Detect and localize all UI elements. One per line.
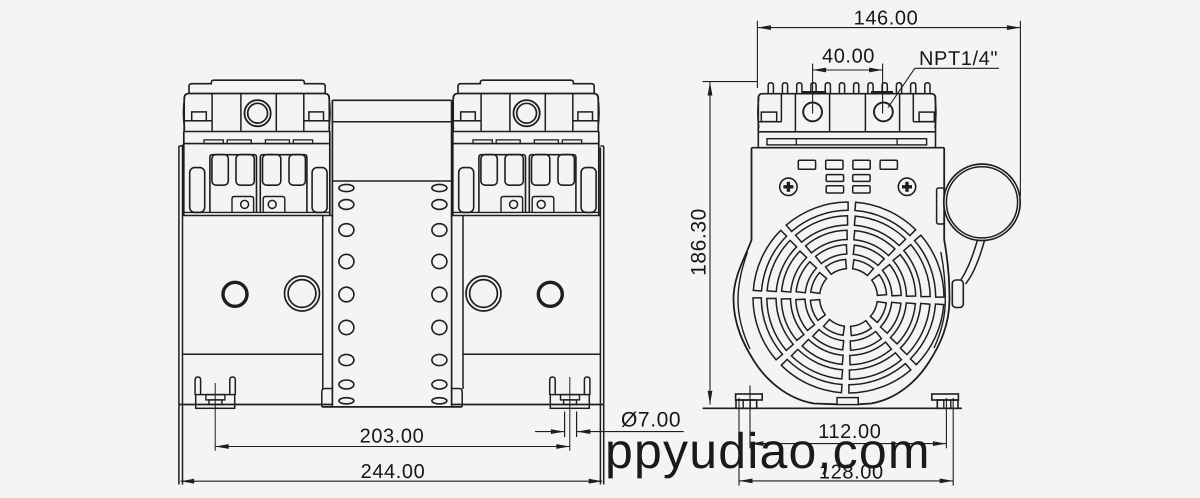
svg-text:186.30: 186.30	[688, 208, 711, 276]
svg-text:244.00: 244.00	[361, 461, 426, 483]
svg-text:ppyudiao,com: ppyudiao,com	[605, 423, 931, 479]
svg-text:203.00: 203.00	[360, 426, 425, 448]
svg-text:40.00: 40.00	[822, 45, 875, 67]
svg-text:NPT1/4": NPT1/4"	[919, 48, 998, 70]
svg-text:146.00: 146.00	[854, 7, 919, 29]
